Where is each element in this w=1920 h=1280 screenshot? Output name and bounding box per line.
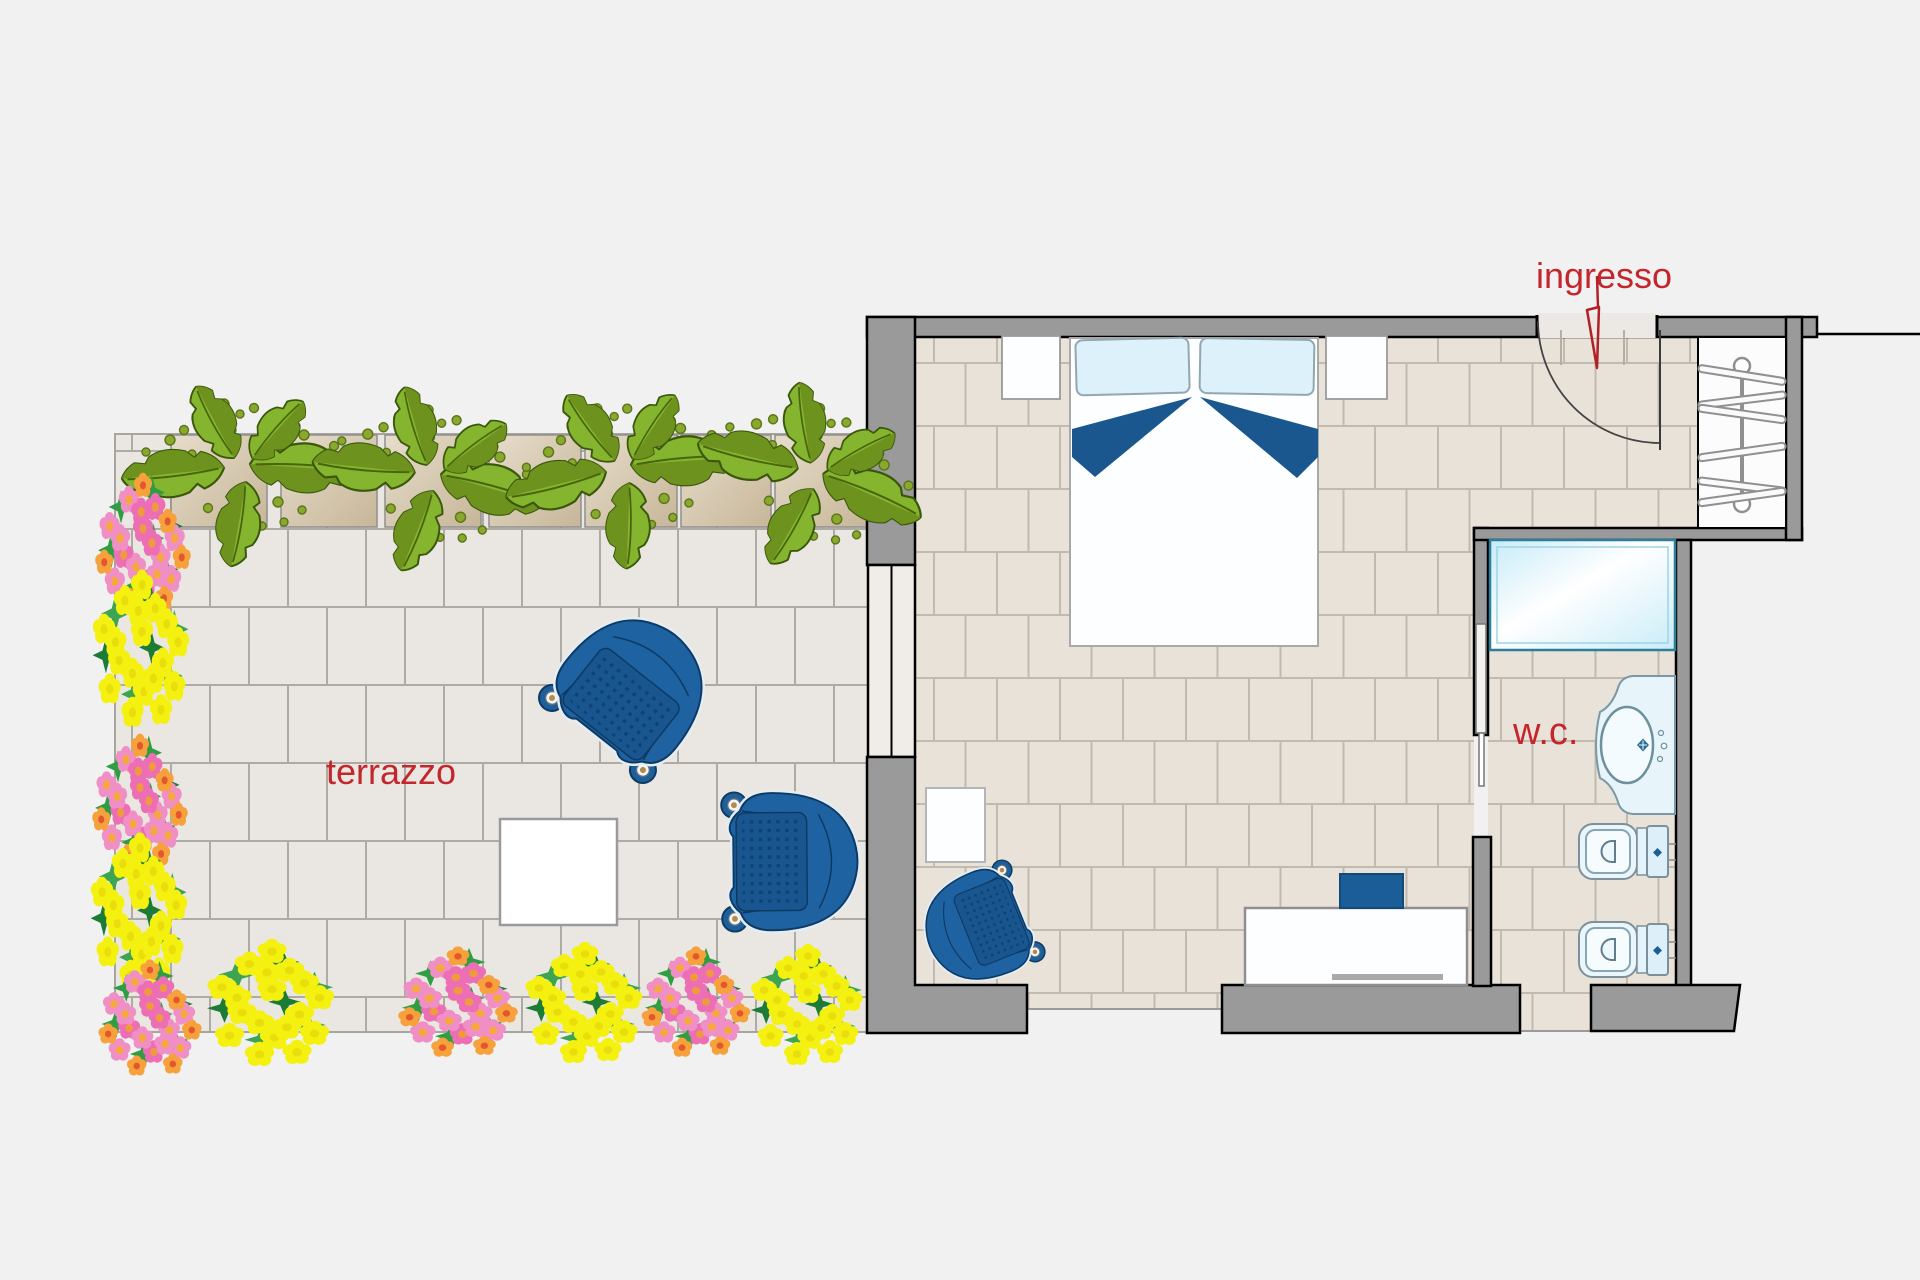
svg-text:terrazzo: terrazzo: [326, 751, 456, 792]
svg-text:ingresso: ingresso: [1536, 255, 1672, 296]
svg-text:w.c.: w.c.: [1512, 711, 1578, 753]
